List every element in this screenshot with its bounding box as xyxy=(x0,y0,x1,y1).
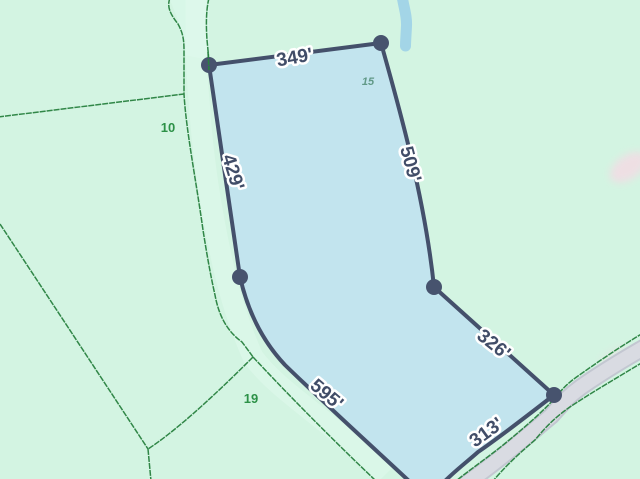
svg-text:10: 10 xyxy=(161,120,175,135)
svg-text:19: 19 xyxy=(244,391,258,406)
svg-text:15: 15 xyxy=(362,76,375,88)
